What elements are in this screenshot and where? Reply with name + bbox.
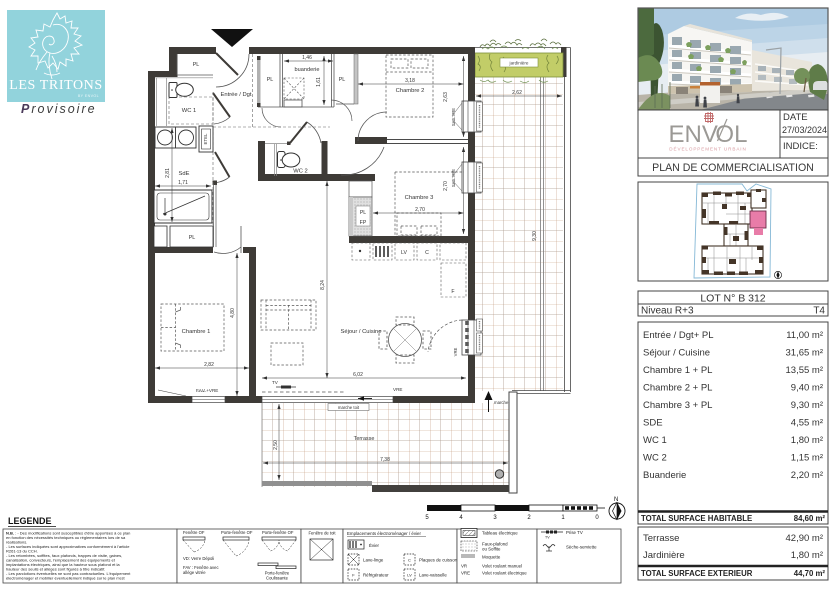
svg-text:Niveau R+3: Niveau R+3 (641, 306, 694, 317)
svg-text:électroménager et mobilier éve: électroménager et mobilier éventuellemen… (6, 576, 125, 581)
svg-text:1: 1 (561, 515, 565, 521)
svg-text:Plaques de cuisson: Plaques de cuisson (419, 558, 458, 563)
svg-text:1,46: 1,46 (302, 55, 312, 61)
svg-text:LV: LV (407, 573, 412, 578)
svg-text:2,82: 2,82 (204, 362, 214, 368)
svg-text:WC 1: WC 1 (643, 435, 667, 446)
svg-text:3,18: 3,18 (405, 78, 415, 84)
svg-text:1,80 m²: 1,80 m² (791, 550, 823, 561)
svg-text:2,70: 2,70 (415, 207, 425, 213)
svg-text:Chambre 2 + PL: Chambre 2 + PL (643, 383, 712, 394)
svg-text:SDE: SDE (643, 418, 663, 429)
svg-text:C: C (408, 558, 411, 563)
svg-text:WC 2: WC 2 (293, 169, 308, 175)
svg-text:Buanderie: Buanderie (643, 470, 686, 481)
svg-text:1,61: 1,61 (316, 77, 322, 87)
svg-text:Séjour / Cuisine: Séjour / Cuisine (341, 329, 382, 335)
svg-text:WC 1: WC 1 (182, 108, 197, 114)
svg-text:Lave-vaisselle: Lave-vaisselle (419, 573, 447, 578)
svg-text:Jardinière: Jardinière (643, 550, 685, 561)
svg-text:TV: TV (545, 536, 550, 540)
svg-text:Porte-fenêtre OF: Porte-fenêtre OF (262, 530, 294, 535)
svg-text:7,38: 7,38 (380, 457, 390, 463)
svg-text:TOTAL SURFACE EXTERIEUR: TOTAL SURFACE EXTERIEUR (641, 569, 753, 578)
svg-text:N: N (614, 497, 618, 503)
svg-text:Emplacements électroménager /: Emplacements électroménager / évier (347, 531, 421, 536)
svg-text:VRE: VRE (393, 387, 402, 392)
svg-text:PL: PL (339, 77, 346, 83)
svg-text:PL: PL (360, 210, 366, 216)
svg-text:VD: Verre Dépoli: VD: Verre Dépoli (183, 556, 214, 561)
svg-text:4: 4 (459, 515, 463, 521)
svg-text:TOTAL SURFACE HABITABLE: TOTAL SURFACE HABITABLE (641, 514, 752, 523)
svg-text:VRE: VRE (461, 571, 470, 576)
svg-text:8,24: 8,24 (320, 280, 326, 290)
svg-text:T4: T4 (813, 306, 825, 317)
svg-text:Tableau électrique: Tableau électrique (482, 531, 518, 536)
svg-text:S̶A̶V̶ VRE: S̶A̶V̶ VRE (451, 169, 456, 187)
svg-text:Séjour / Cuisine: Séjour / Cuisine (643, 348, 710, 359)
svg-text:VRE: VRE (453, 347, 458, 356)
svg-text:Prise TV: Prise TV (566, 530, 583, 535)
svg-text:0: 0 (595, 515, 599, 521)
svg-text:Sèche-serviette: Sèche-serviette (566, 545, 597, 550)
svg-text:1,15 m²: 1,15 m² (791, 453, 823, 464)
svg-text:Coulissante: Coulissante (266, 576, 289, 581)
svg-text:2,81: 2,81 (165, 168, 171, 178)
svg-text:9,30: 9,30 (532, 231, 538, 241)
svg-text:9,40 m²: 9,40 m² (791, 383, 823, 394)
svg-text:PL: PL (267, 77, 274, 83)
svg-text:F: F (451, 289, 454, 295)
svg-text:Entrée / Dgt+ PL: Entrée / Dgt+ PL (643, 330, 714, 341)
svg-text:11,00 m²: 11,00 m² (786, 330, 823, 341)
svg-text:PLAN DE COMMERCIALISATION: PLAN DE COMMERCIALISATION (652, 162, 814, 174)
svg-text:S̶A̶V̶ VRE: S̶A̶V̶ VRE (451, 108, 456, 126)
svg-text:Fenêtre de toit: Fenêtre de toit (308, 531, 336, 536)
svg-text:TV: TV (272, 380, 279, 385)
svg-text:13,55 m²: 13,55 m² (786, 365, 824, 376)
svg-text:6,02: 6,02 (353, 372, 363, 378)
svg-text:BY ENVOL: BY ENVOL (78, 94, 99, 98)
svg-text:WC 2: WC 2 (643, 453, 667, 464)
svg-text:Chambre 1 + PL: Chambre 1 + PL (643, 365, 712, 376)
svg-text:5: 5 (425, 515, 429, 521)
svg-text:buanderie: buanderie (295, 67, 320, 73)
svg-text:1,71: 1,71 (178, 180, 188, 186)
svg-text:LES TRITONS: LES TRITONS (9, 78, 103, 93)
svg-text:INDICE:: INDICE: (783, 141, 818, 152)
svg-text:Porte-fenêtre OF: Porte-fenêtre OF (221, 530, 253, 535)
svg-text:3: 3 (493, 515, 497, 521)
svg-text:84,60 m²: 84,60 m² (794, 514, 826, 523)
svg-text:VR: VR (461, 564, 467, 569)
svg-text:Évier: Évier (369, 543, 380, 548)
svg-text:27/03/2024: 27/03/2024 (782, 125, 827, 135)
svg-text:2: 2 (527, 515, 531, 521)
svg-text:LOT N° B 312: LOT N° B 312 (700, 293, 765, 305)
svg-text:2,62: 2,62 (512, 90, 522, 96)
svg-text:LV: LV (401, 250, 407, 256)
svg-text:jardinière: jardinière (509, 61, 529, 66)
svg-text:Terrasse: Terrasse (643, 533, 679, 544)
svg-text:44,70 m²: 44,70 m² (794, 569, 826, 578)
svg-text:31,65 m²: 31,65 m² (786, 348, 824, 359)
svg-text:Volet roulant électrique: Volet roulant électrique (482, 571, 527, 576)
svg-text:PL: PL (193, 62, 200, 68)
svg-text:Chambre 1: Chambre 1 (182, 329, 211, 335)
svg-text:FP: FP (360, 220, 367, 226)
svg-text:ETEL: ETEL (203, 133, 208, 145)
svg-text:Chambre 3 + PL: Chambre 3 + PL (643, 400, 712, 411)
svg-text:F̶A̶V̶ +VRE: F̶A̶V̶ +VRE (196, 388, 218, 393)
svg-text:Provisoire: Provisoire (21, 102, 97, 116)
svg-text:Réfrigérateur: Réfrigérateur (363, 573, 389, 578)
svg-text:4,80: 4,80 (230, 308, 236, 318)
svg-text:DATE: DATE (783, 112, 808, 123)
svg-text:Entrée / Dgt: Entrée / Dgt (221, 92, 252, 98)
svg-text:C: C (425, 250, 429, 256)
svg-text:4,55 m²: 4,55 m² (791, 418, 823, 429)
svg-text:Volet roulant manuel: Volet roulant manuel (482, 564, 522, 569)
svg-text:Chambre 2: Chambre 2 (396, 88, 425, 94)
svg-text:marche: marche (494, 400, 509, 405)
svg-text:42,90 m²: 42,90 m² (786, 533, 824, 544)
svg-text:Chambre 3: Chambre 3 (405, 195, 434, 201)
svg-text:Moquette: Moquette (482, 555, 501, 560)
svg-text:2,63: 2,63 (443, 92, 449, 102)
svg-text:2,70: 2,70 (443, 181, 449, 191)
svg-text:9,30 m²: 9,30 m² (791, 400, 823, 411)
svg-text:ou Soffite: ou Soffite (482, 547, 501, 552)
svg-text:2,50: 2,50 (273, 440, 279, 450)
svg-text:Terrasse: Terrasse (354, 436, 375, 442)
svg-text:ENVOL: ENVOL (669, 121, 748, 148)
svg-text:allège vitrée: allège vitrée (183, 570, 206, 575)
svg-text:LEGENDE: LEGENDE (8, 516, 52, 526)
svg-text:PL: PL (189, 235, 196, 241)
svg-text:DÉVELOPPEMENT URBAIN: DÉVELOPPEMENT URBAIN (669, 146, 746, 152)
svg-text:1,80 m²: 1,80 m² (791, 435, 823, 446)
svg-text:Fenêtre OF: Fenêtre OF (183, 530, 205, 535)
svg-text:SdE: SdE (179, 171, 190, 177)
svg-text:marche toit: marche toit (338, 405, 360, 410)
svg-text:2,20 m²: 2,20 m² (791, 470, 823, 481)
svg-text:Lave-linge: Lave-linge (363, 558, 384, 563)
